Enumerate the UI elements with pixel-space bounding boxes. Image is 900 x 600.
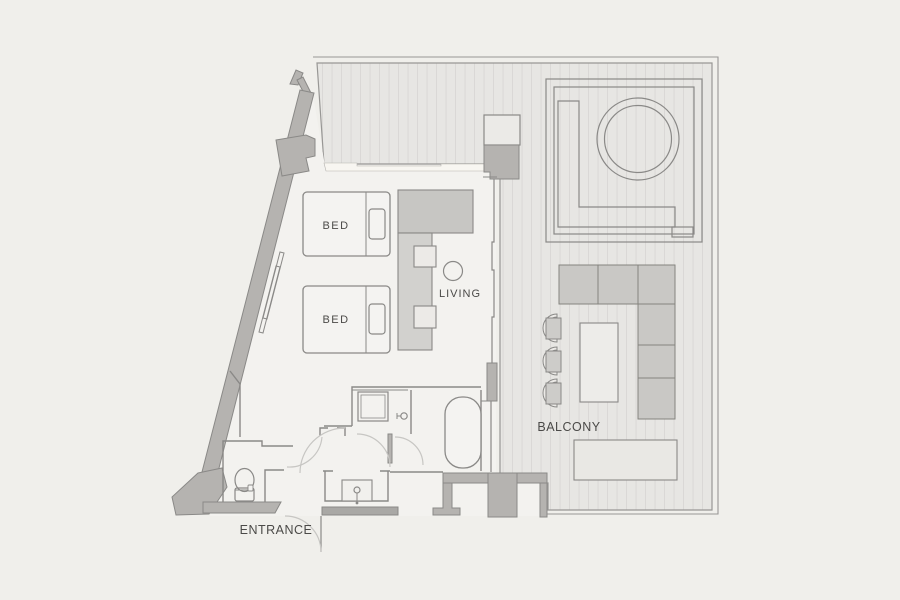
entrance-label: ENTRANCE [240, 523, 313, 537]
coffee-table [580, 323, 618, 402]
chair-seat [546, 383, 561, 404]
floor-plan: BALCONY BED BED [0, 0, 900, 600]
living-label: LIVING [439, 288, 481, 300]
wall-column-block [276, 135, 315, 176]
bed-2: BED [303, 286, 390, 353]
balcony-label: BALCONY [537, 420, 600, 434]
counter-top-section [398, 190, 473, 233]
sliding-door [487, 363, 497, 401]
toilet-handle [248, 485, 253, 491]
chair-seat [546, 318, 561, 339]
bar-stool [414, 306, 436, 328]
bed-label: BED [322, 220, 349, 232]
outdoor-chair [543, 347, 561, 375]
sink [342, 480, 372, 504]
sofa-segment [638, 304, 675, 345]
bar-stool [414, 246, 436, 267]
partition-column [484, 115, 520, 179]
outdoor-chairs [543, 314, 561, 407]
outdoor-chair [543, 314, 561, 342]
sofa-segment [598, 265, 638, 304]
column-upper [484, 115, 520, 145]
outdoor-bench [574, 440, 677, 480]
round-side-table [444, 262, 463, 281]
sofa-segment [559, 265, 598, 304]
sofa-segment [638, 378, 675, 419]
sofa-segment [638, 345, 675, 378]
sink-faucet-base [356, 502, 359, 505]
party-wall-center-block [488, 473, 517, 517]
sofa-segment [638, 265, 675, 304]
party-wall-right-leg [540, 483, 547, 517]
bathtub [445, 397, 481, 468]
entrance-wall-left [203, 502, 281, 513]
entrance-wall-right [322, 507, 398, 515]
bed-label: BED [322, 314, 349, 326]
chair-seat [546, 351, 561, 372]
outdoor-chair [543, 379, 561, 407]
bed-1: BED [303, 192, 390, 256]
